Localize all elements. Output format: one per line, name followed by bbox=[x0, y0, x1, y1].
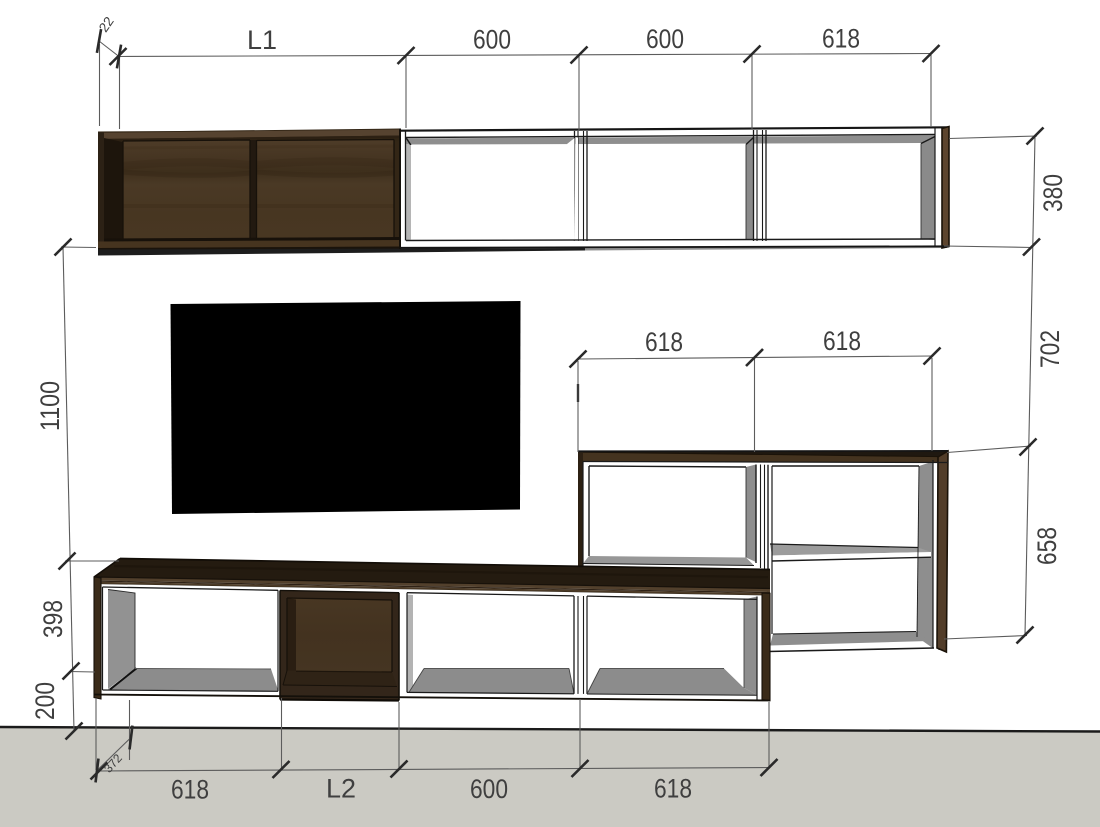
svg-text:600: 600 bbox=[470, 774, 508, 804]
svg-text:380: 380 bbox=[1038, 174, 1068, 212]
svg-text:1100: 1100 bbox=[35, 381, 65, 431]
svg-text:618: 618 bbox=[822, 24, 860, 54]
svg-text:618: 618 bbox=[823, 326, 861, 356]
svg-text:200: 200 bbox=[30, 682, 60, 720]
svg-text:398: 398 bbox=[38, 600, 68, 638]
svg-text:702: 702 bbox=[1035, 330, 1065, 368]
svg-text:618: 618 bbox=[654, 774, 692, 804]
svg-text:618: 618 bbox=[645, 327, 683, 357]
svg-text:600: 600 bbox=[473, 25, 511, 55]
svg-text:658: 658 bbox=[1032, 527, 1062, 565]
svg-text:L2: L2 bbox=[326, 774, 356, 804]
svg-text:L1: L1 bbox=[247, 25, 277, 55]
svg-text:600: 600 bbox=[646, 24, 684, 54]
svg-text:618: 618 bbox=[171, 775, 209, 805]
